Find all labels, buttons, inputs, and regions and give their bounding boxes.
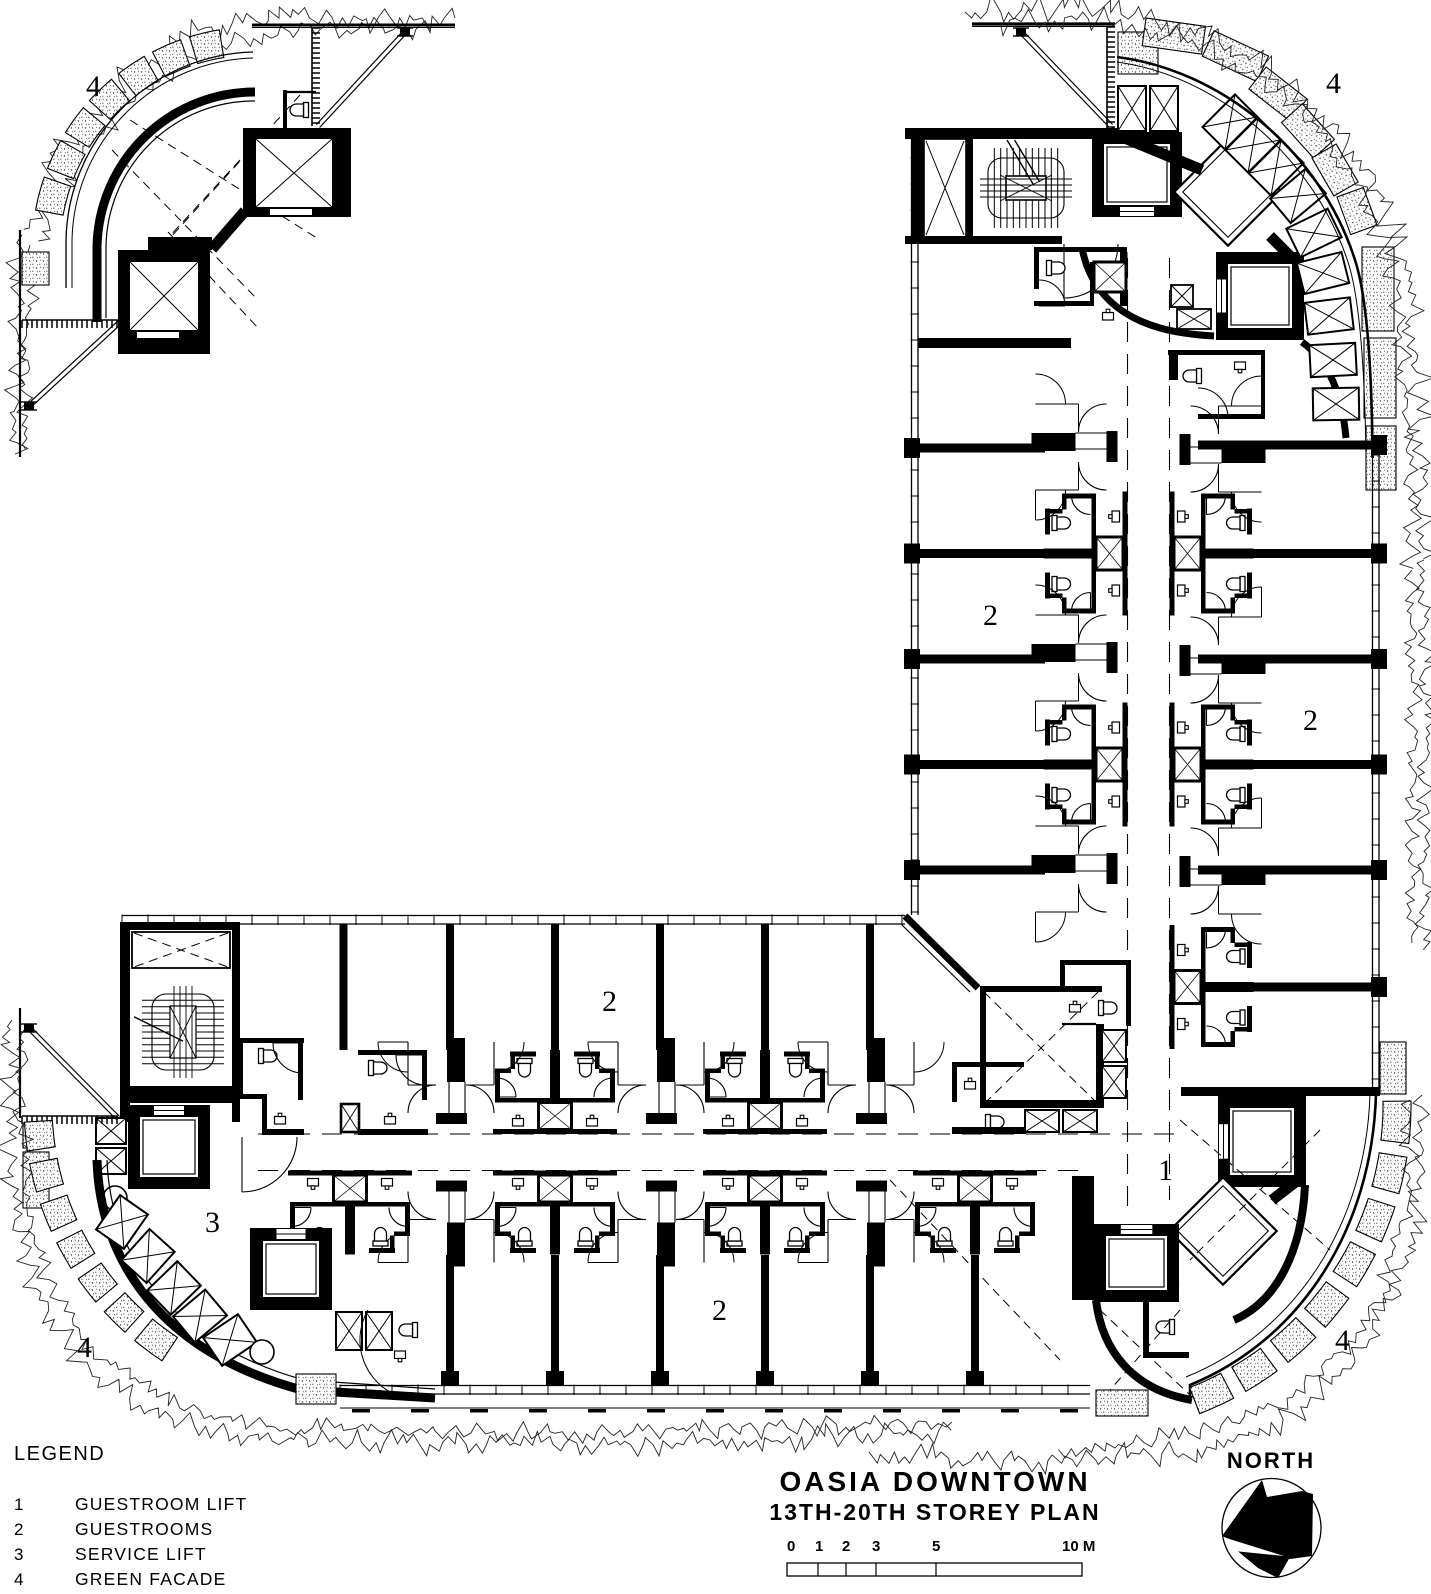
svg-text:3: 3 [14, 1545, 23, 1564]
svg-text:NORTH: NORTH [1227, 1448, 1315, 1473]
svg-text:GUESTROOMS: GUESTROOMS [75, 1519, 213, 1539]
svg-text:2: 2 [602, 985, 617, 1018]
svg-text:4: 4 [86, 70, 101, 103]
svg-text:4: 4 [1335, 1324, 1350, 1357]
svg-text:OASIA DOWNTOWN: OASIA DOWNTOWN [779, 1466, 1090, 1497]
svg-text:2: 2 [983, 599, 998, 632]
svg-text:4: 4 [1326, 67, 1341, 100]
svg-text:2: 2 [712, 1294, 727, 1327]
svg-text:2: 2 [14, 1520, 23, 1539]
svg-text:4: 4 [14, 1570, 23, 1589]
svg-text:3: 3 [205, 1206, 220, 1239]
svg-text:10 M: 10 M [1062, 1538, 1095, 1555]
svg-text:4: 4 [77, 1331, 92, 1364]
svg-text:SERVICE LIFT: SERVICE LIFT [75, 1544, 207, 1564]
svg-text:13TH-20TH STOREY PLAN: 13TH-20TH STOREY PLAN [769, 1499, 1100, 1525]
svg-text:2: 2 [1303, 704, 1318, 737]
svg-text:1: 1 [14, 1495, 23, 1514]
svg-text:5: 5 [932, 1538, 940, 1555]
svg-text:GUESTROOM LIFT: GUESTROOM LIFT [75, 1494, 247, 1514]
svg-text:2: 2 [842, 1538, 850, 1555]
svg-text:3: 3 [872, 1538, 880, 1555]
svg-text:1: 1 [1158, 1154, 1173, 1187]
svg-text:1: 1 [815, 1538, 823, 1555]
svg-text:LEGEND: LEGEND [14, 1443, 105, 1465]
svg-text:0: 0 [787, 1538, 795, 1555]
svg-text:GREEN FACADE: GREEN FACADE [75, 1569, 227, 1589]
